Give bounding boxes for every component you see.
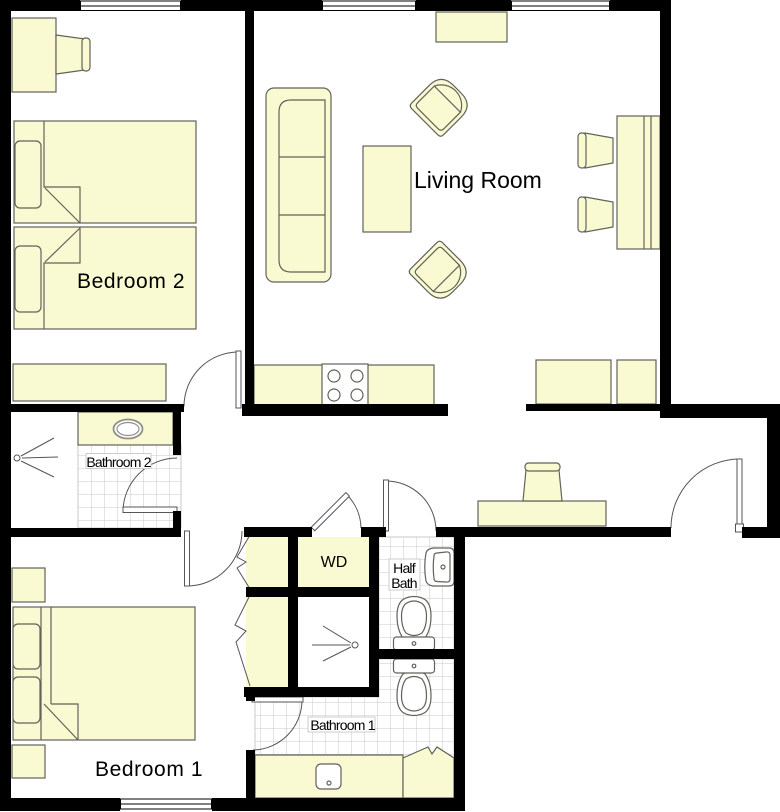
svg-text:Living Room: Living Room (414, 167, 542, 193)
svg-text:Bathroom 1: Bathroom 1 (310, 717, 375, 733)
svg-text:Half: Half (393, 560, 416, 576)
svg-text:Bedroom 2: Bedroom 2 (77, 270, 185, 293)
svg-text:Bathroom 2: Bathroom 2 (86, 454, 151, 470)
svg-text:Bedroom 1: Bedroom 1 (95, 758, 203, 781)
svg-text:Bath: Bath (391, 575, 417, 591)
svg-text:WD: WD (321, 554, 348, 571)
